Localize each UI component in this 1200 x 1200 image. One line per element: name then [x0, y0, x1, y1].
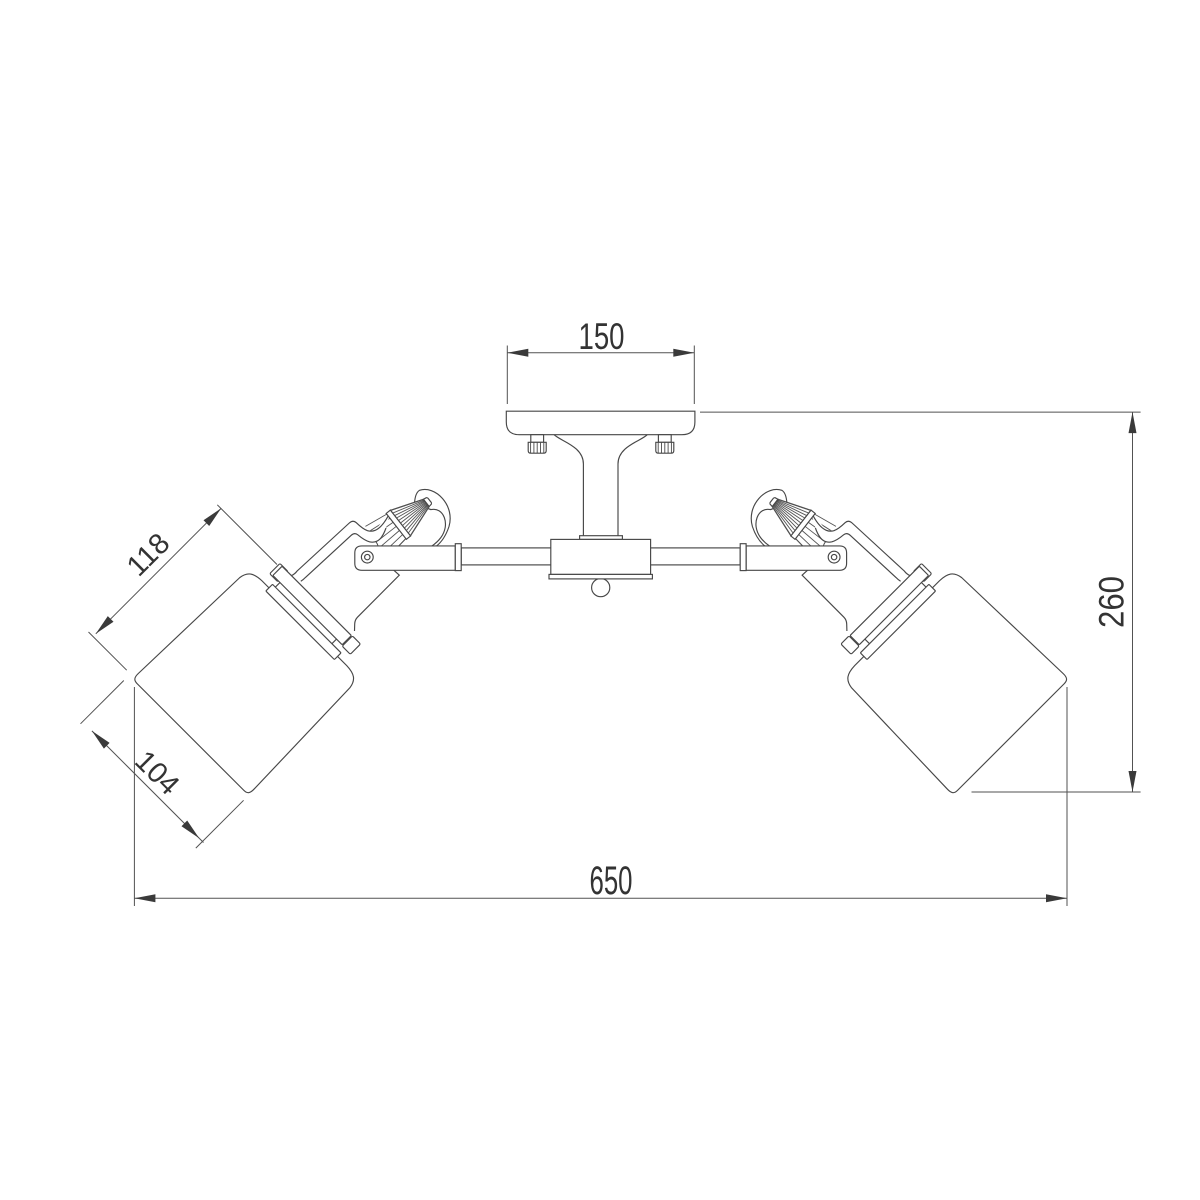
svg-text:650: 650	[590, 859, 633, 903]
svg-text:260: 260	[1092, 576, 1131, 628]
svg-text:150: 150	[579, 316, 625, 357]
